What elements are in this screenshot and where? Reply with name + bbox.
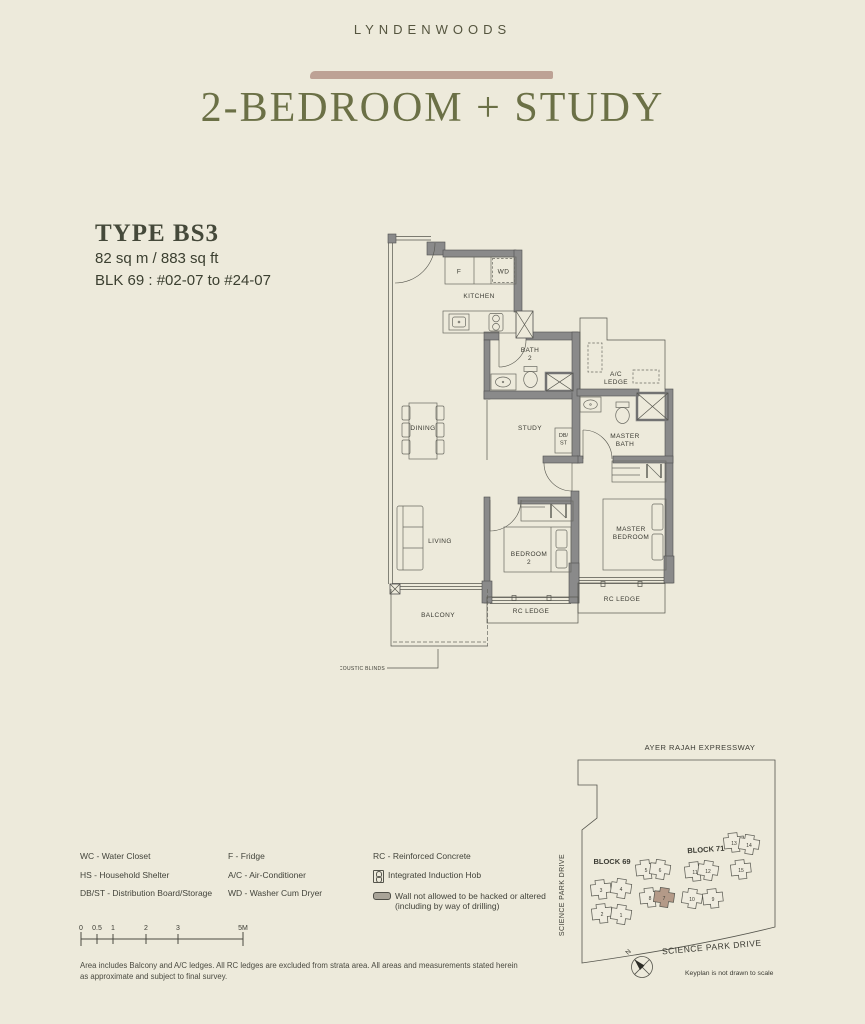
legend-item-wall: Wall not allowed to be hacked or altered…	[373, 891, 546, 911]
svg-text:5M: 5M	[238, 925, 248, 932]
svg-text:LEDGE: LEDGE	[604, 379, 628, 386]
study-label: STUDY	[518, 425, 542, 432]
page-title: 2-BEDROOM + STUDY	[0, 84, 865, 132]
walls	[388, 234, 674, 603]
sofa	[397, 506, 423, 570]
svg-text:4: 4	[620, 887, 623, 893]
keyplan-units: 345687211314111215109	[590, 832, 760, 925]
induction-hob-icon	[373, 870, 384, 883]
washer-dryer-label: WD	[498, 269, 510, 276]
keyplan-unit-7: 7	[653, 887, 675, 909]
balcony-label: BALCONY	[421, 612, 455, 619]
svg-text:14: 14	[746, 843, 752, 849]
bedroom2-bed	[504, 527, 571, 572]
master-bath-fixtures	[580, 397, 629, 424]
legend-item-hob: Integrated Induction Hob	[373, 870, 546, 883]
living-label: LIVING	[428, 538, 452, 545]
road-label-left: SCIENCE PARK DRIVE	[559, 854, 566, 936]
keyplan-note: Keyplan is not drawn to scale	[685, 970, 774, 977]
window-walls	[389, 236, 666, 604]
scale-bar: 0 0.5 1 2 3 5M	[78, 922, 258, 948]
svg-text:2: 2	[528, 355, 532, 362]
dining-label: DINING	[410, 425, 435, 432]
brand-name: LYNDENWOODS	[0, 22, 865, 37]
keyplan-unit-2: 2	[591, 903, 613, 924]
svg-text:2: 2	[527, 559, 531, 566]
unit-block-range: BLK 69 : #02-07 to #24-07	[95, 272, 271, 289]
master-bedroom-label: MASTER	[616, 526, 646, 533]
keyplan-unit-4: 4	[610, 878, 632, 900]
unit-type: TYPE BS3	[95, 220, 219, 248]
svg-text:BEDROOM: BEDROOM	[613, 534, 649, 541]
svg-text:DB/: DB/	[559, 433, 569, 439]
svg-text:10: 10	[689, 897, 695, 903]
keyplan-unit-15: 15	[730, 859, 752, 880]
svg-text:ST: ST	[560, 441, 568, 447]
legend-column-1: WC - Water Closet HS - Household Shelter…	[80, 851, 212, 907]
legend-item: WD - Washer Cum Dryer	[228, 888, 322, 898]
kitchen-label: KITCHEN	[463, 293, 494, 300]
bath2-shaft	[546, 373, 573, 391]
road-label-bottom: SCIENCE PARK DRIVE	[661, 938, 762, 957]
svg-text:0: 0	[79, 925, 83, 932]
ac-ledge-label: A/C	[610, 371, 622, 378]
kitchen-cabinets: F WD	[445, 257, 516, 284]
bath2-label: BATH	[521, 347, 539, 354]
svg-text:3: 3	[176, 925, 180, 932]
accent-bar	[310, 71, 553, 79]
keyplan-unit-1: 1	[610, 904, 632, 926]
svg-text:1: 1	[620, 913, 623, 919]
svg-text:2: 2	[601, 912, 604, 918]
bedroom2-label: BEDROOM	[511, 551, 547, 558]
kitchen-shaft	[516, 311, 533, 338]
svg-text:8: 8	[649, 896, 652, 902]
legend-item: RC - Reinforced Concrete	[373, 851, 546, 861]
acoustic-blinds-callout: ACOUSTIC BLINDS	[340, 649, 438, 672]
rc-ledge2-label: RC LEDGE	[604, 596, 641, 603]
disclaimer-text: Area includes Balcony and A/C ledges. Al…	[80, 960, 520, 983]
legend-column-3: RC - Reinforced Concrete Integrated Indu…	[373, 851, 546, 920]
keyplan-unit-9: 9	[702, 888, 724, 909]
svg-text:2: 2	[144, 925, 148, 932]
floorplan-brochure-page: LYNDENWOODS 2-BEDROOM + STUDY TYPE BS3 8…	[0, 0, 865, 1024]
road-label-top: AYER RAJAH EXPRESSWAY	[645, 743, 756, 752]
svg-text:7: 7	[663, 896, 666, 902]
svg-text:ACOUSTIC BLINDS: ACOUSTIC BLINDS	[340, 666, 385, 672]
legend-item: F - Fridge	[228, 851, 322, 861]
legend-item: WC - Water Closet	[80, 851, 212, 861]
svg-text:1: 1	[111, 925, 115, 932]
svg-text:11: 11	[692, 870, 697, 876]
legend-item: DB/ST - Distribution Board/Storage	[80, 888, 212, 898]
svg-text:0.5: 0.5	[92, 925, 102, 932]
svg-text:5: 5	[645, 868, 648, 874]
unit-area: 82 sq m / 883 sq ft	[95, 250, 218, 267]
rc-ledge1-label: RC LEDGE	[513, 608, 550, 615]
keyplan-unit-10: 10	[681, 888, 703, 910]
wall-swatch-icon	[373, 892, 391, 900]
svg-text:3: 3	[600, 888, 603, 894]
svg-text:13: 13	[731, 841, 737, 847]
dbst-cabinet: DB/ ST	[555, 428, 572, 453]
legend-column-2: F - Fridge A/C - Air-Conditioner WD - Wa…	[228, 851, 322, 907]
svg-text:15: 15	[738, 868, 744, 874]
keyplan: AYER RAJAH EXPRESSWAY SCIENCE PARK DRIVE…	[540, 735, 865, 1024]
block-71-label: BLOCK 71	[687, 844, 725, 856]
svg-text:BATH: BATH	[616, 441, 634, 448]
keyplan-unit-6: 6	[649, 859, 671, 881]
svg-text:6: 6	[659, 868, 662, 874]
legend-item: A/C - Air-Conditioner	[228, 870, 322, 880]
balcony-column	[390, 584, 400, 594]
kitchen-counter	[443, 311, 516, 333]
svg-text:9: 9	[712, 897, 715, 903]
keyplan-unit-3: 3	[590, 879, 612, 900]
master-wardrobe	[612, 461, 666, 482]
svg-text:12: 12	[705, 869, 711, 875]
legend-item: HS - Household Shelter	[80, 870, 212, 880]
bath2-fixtures	[491, 367, 537, 391]
floorplan-drawing: F WD	[340, 225, 700, 695]
master-shower	[637, 393, 668, 420]
block-69-label: BLOCK 69	[593, 857, 630, 866]
fridge-label: F	[457, 269, 461, 276]
master-bath-label: MASTER	[610, 433, 640, 440]
